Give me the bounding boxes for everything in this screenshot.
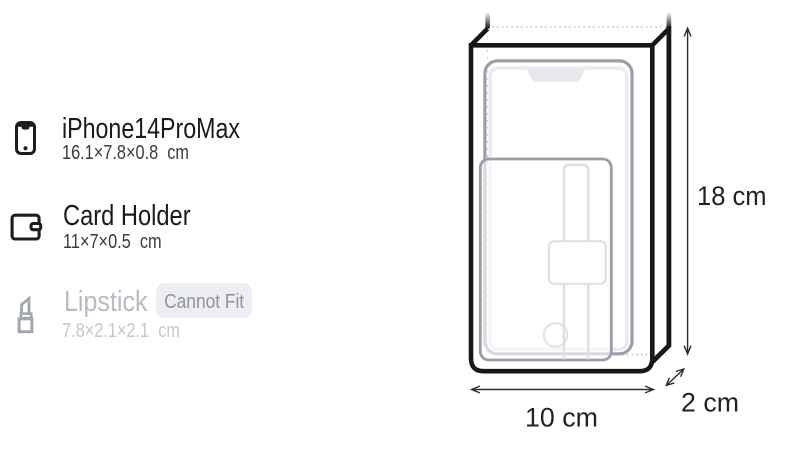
svg-text:18 cm: 18 cm xyxy=(697,181,767,211)
svg-text:2 cm: 2 cm xyxy=(681,388,739,418)
svg-text:10 cm: 10 cm xyxy=(525,403,598,433)
